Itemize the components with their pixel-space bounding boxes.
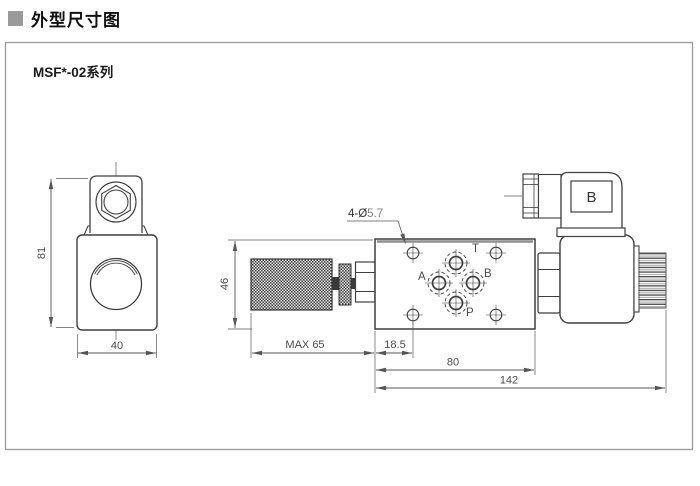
coil-end-step: [634, 246, 639, 312]
connector-neck: [539, 175, 562, 219]
dimension-drawing-page: 外型尺寸图 MSF*-02系列: [0, 0, 700, 486]
series-label: MSF*-02系列: [33, 64, 113, 80]
dim-81-label: 81: [36, 247, 48, 259]
threaded-shaft: [332, 277, 339, 290]
callout-prefix: 4-Ø: [348, 208, 367, 220]
coil-end-fins: [639, 253, 666, 308]
cable-gland: [523, 174, 539, 218]
valve-body: [375, 239, 535, 329]
knurled-locknut: [339, 264, 351, 305]
hex-adapter: [356, 262, 376, 302]
coil-hex-nut: [538, 253, 560, 313]
port-t-label: T: [472, 243, 479, 255]
port-b-label: B: [484, 268, 492, 280]
solenoid-coil: [560, 235, 634, 323]
dim-142-label: 142: [500, 375, 518, 387]
threaded-shaft-2: [351, 278, 356, 289]
callout-value: 5.7: [367, 208, 383, 220]
port-p-label: P: [466, 307, 474, 319]
knurled-knob: [251, 259, 332, 310]
dim-46-label: 46: [219, 278, 231, 290]
dim-18-5-label: 18.5: [384, 339, 405, 351]
dim-max65-label: MAX 65: [285, 339, 324, 351]
svg-text:4-Ø5.7: 4-Ø5.7: [348, 208, 383, 220]
nut-inner-circle: [104, 190, 128, 214]
knob-front-circle: [91, 259, 142, 310]
dim-40-label: 40: [111, 340, 123, 352]
technical-drawing: MSF*-02系列 81: [0, 0, 700, 486]
port-a-label: A: [418, 271, 426, 283]
connector-flange: [557, 228, 625, 237]
dim-80-label: 80: [447, 357, 459, 369]
connector-label: B: [586, 189, 596, 206]
